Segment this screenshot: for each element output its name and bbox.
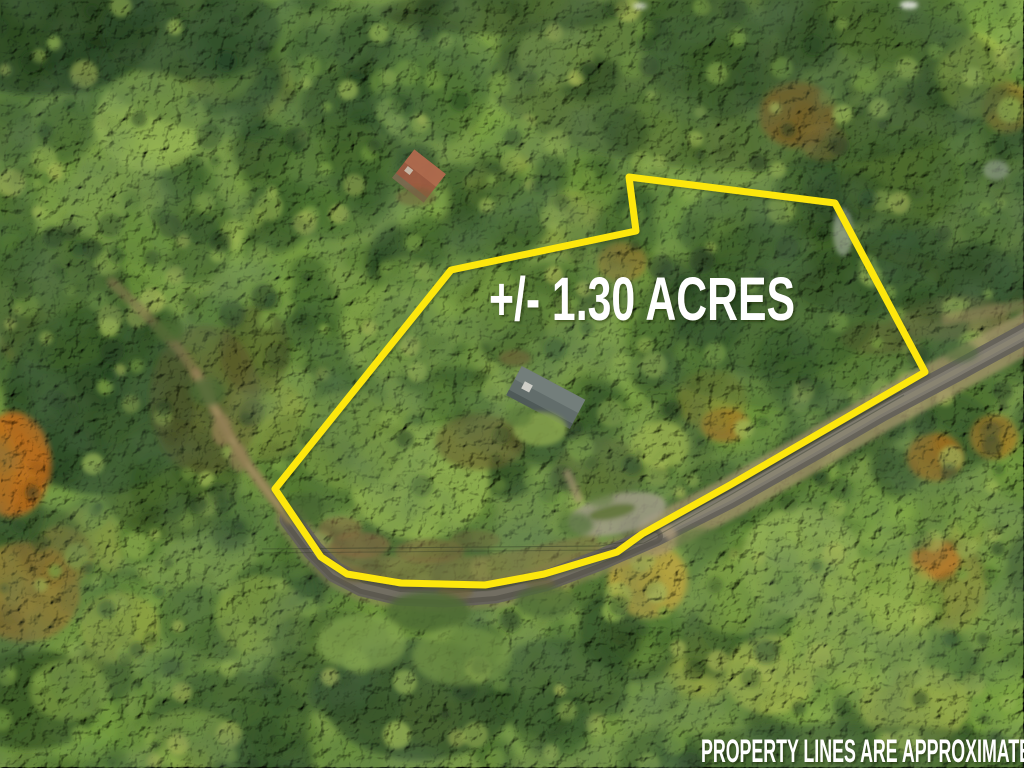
svg-text:PROPERTY LINES ARE APPROXIMATE: PROPERTY LINES ARE APPROXIMATE (701, 733, 1024, 768)
svg-text:+/- 1.30 ACRES: +/- 1.30 ACRES (489, 265, 795, 333)
